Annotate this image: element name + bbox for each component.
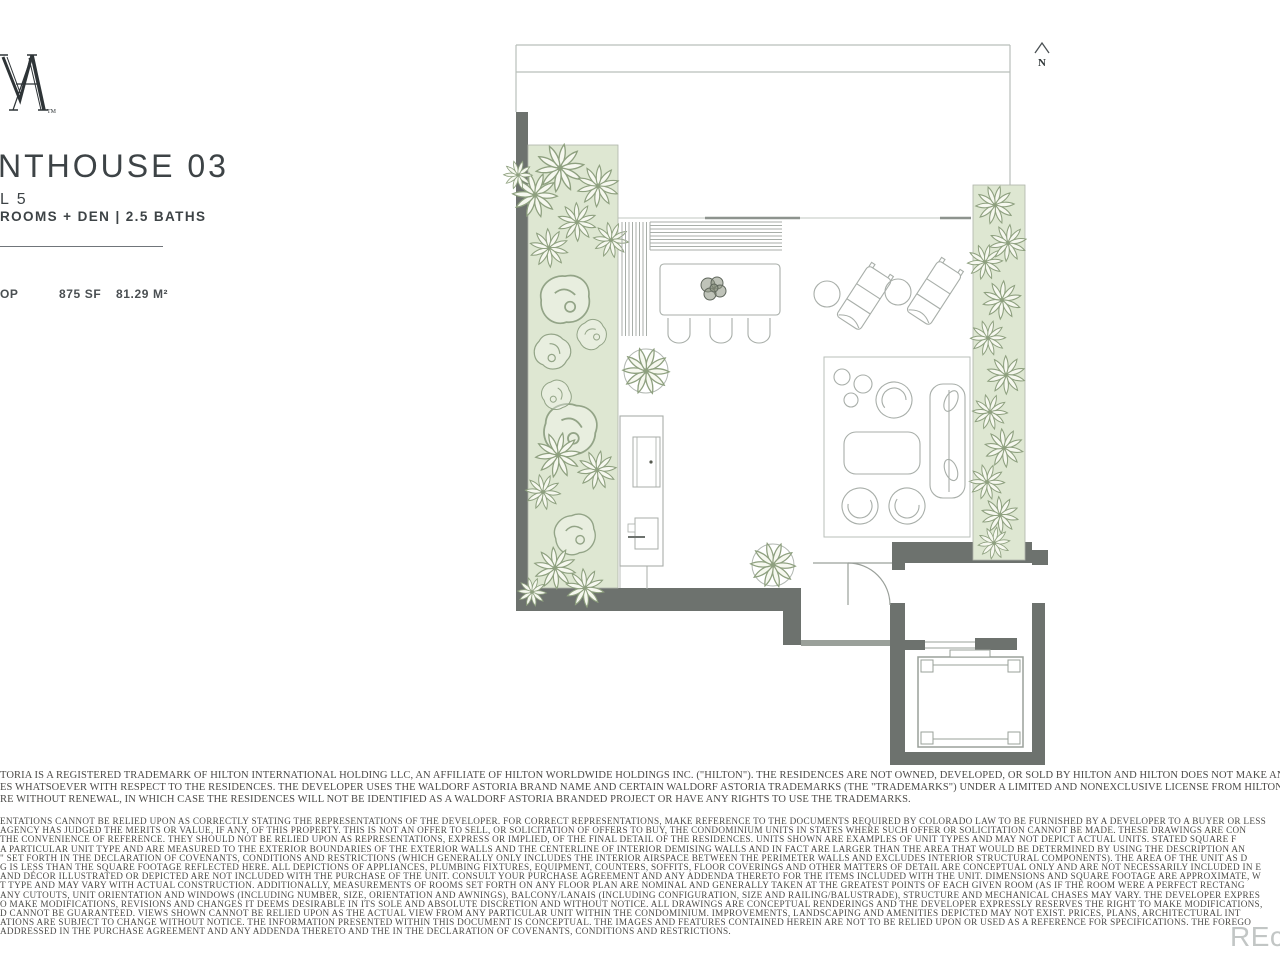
lounge-rug [824, 357, 970, 537]
barrel-chair-2 [839, 485, 881, 527]
table-centerpiece-plant [701, 277, 726, 300]
outdoor-kitchen [620, 416, 663, 589]
chaise-lounge-2 [906, 257, 964, 326]
side-table-1 [814, 281, 840, 307]
rooms-baths-label: ROOMS + DEN | 2.5 BATHS [0, 209, 206, 224]
north-label: N [1038, 57, 1046, 69]
disclaimer-legal: ENTATIONS CANNOT BE RELIED UPON AS CORRE… [0, 817, 1280, 937]
dining-chairs [668, 318, 770, 343]
grill [633, 437, 660, 487]
header-divider [0, 246, 163, 247]
hedge-right [960, 182, 1033, 562]
disclaimer-line: ADDRESSED IN THE PURCHASE AGREEMENT AND … [0, 927, 1280, 936]
sofa [930, 384, 965, 498]
disclaimer-line: RE WITHOUT RENEWAL, IN WHICH CASE THE RE… [0, 794, 1280, 806]
disclaimer-line: ES WHATSOEVER WITH RESPECT TO THE RESIDE… [0, 782, 1280, 794]
coffee-table [844, 432, 920, 474]
pouf-2 [854, 375, 872, 393]
waldorf-astoria-logo-icon: TM [0, 55, 57, 115]
round-planter-1 [617, 341, 676, 400]
level-label: L 5 [0, 191, 28, 209]
side-table-2 [885, 279, 911, 305]
door-swing-arc [848, 563, 890, 605]
stat-location-fragment: OP [0, 287, 19, 301]
round-planter-2 [746, 538, 800, 593]
stat-area-m2: 81.29 M² [116, 287, 168, 301]
pouf-1 [834, 369, 850, 385]
page-title: NTHOUSE 03 [0, 148, 229, 185]
pouf-3 [844, 393, 858, 407]
logo-tm: TM [47, 109, 57, 115]
floor-plan: N TM [0, 0, 1280, 960]
elevator [918, 650, 1023, 747]
dining-table [660, 264, 780, 315]
wall-light-segments [801, 640, 975, 648]
disclaimer-line: TORIA IS A REGISTERED TRADEMARK OF HILTO… [0, 770, 1280, 782]
barrel-chair-1 [871, 377, 917, 423]
entry-door [813, 563, 892, 605]
barrel-chair-3 [885, 484, 929, 528]
disclaimer-trademark: TORIA IS A REGISTERED TRADEMARK OF HILTO… [0, 770, 1280, 806]
stat-area-sf: 875 SF [59, 287, 101, 301]
mls-watermark: REc [1230, 921, 1280, 953]
north-arrow-icon: N [1035, 43, 1049, 69]
